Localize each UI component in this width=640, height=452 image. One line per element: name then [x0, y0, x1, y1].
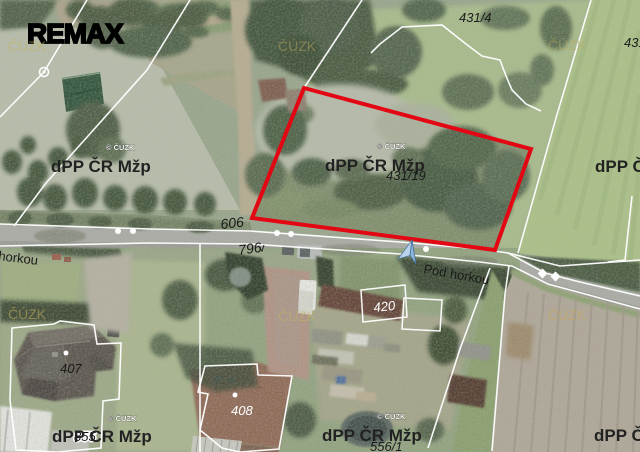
- svg-text:420: 420: [373, 298, 397, 315]
- svg-text:ČÚZK: ČÚZK: [278, 308, 317, 324]
- svg-text:407: 407: [60, 361, 82, 376]
- svg-text:© ČÚZK: © ČÚZK: [106, 143, 135, 152]
- svg-text:431/4: 431/4: [459, 10, 492, 25]
- svg-text:© ČÚZK: © ČÚZK: [377, 142, 406, 151]
- svg-text:431/19: 431/19: [386, 168, 426, 183]
- svg-text:ČÚZK: ČÚZK: [548, 307, 587, 323]
- svg-text:408: 408: [231, 403, 253, 418]
- svg-text:556/1: 556/1: [370, 439, 403, 452]
- svg-text:© ČÚZK: © ČÚZK: [108, 414, 137, 423]
- svg-text:dPP ČR Mžp: dPP ČR Mžp: [51, 157, 151, 176]
- svg-text:606: 606: [220, 214, 245, 232]
- svg-text:dPP Č: dPP Č: [594, 426, 640, 445]
- svg-text:431: 431: [624, 35, 640, 50]
- svg-text:© ČÚZK: © ČÚZK: [377, 412, 406, 421]
- svg-text:dPP Č: dPP Č: [595, 157, 640, 176]
- svg-text:ČÚZK: ČÚZK: [8, 38, 47, 54]
- svg-text:ČÚZK: ČÚZK: [278, 38, 317, 54]
- svg-text:ČÚZK: ČÚZK: [548, 37, 587, 53]
- svg-text:ČÚZK: ČÚZK: [8, 306, 47, 322]
- svg-text:796: 796: [237, 239, 263, 258]
- svg-text:dPP ČR Mžp: dPP ČR Mžp: [52, 427, 152, 446]
